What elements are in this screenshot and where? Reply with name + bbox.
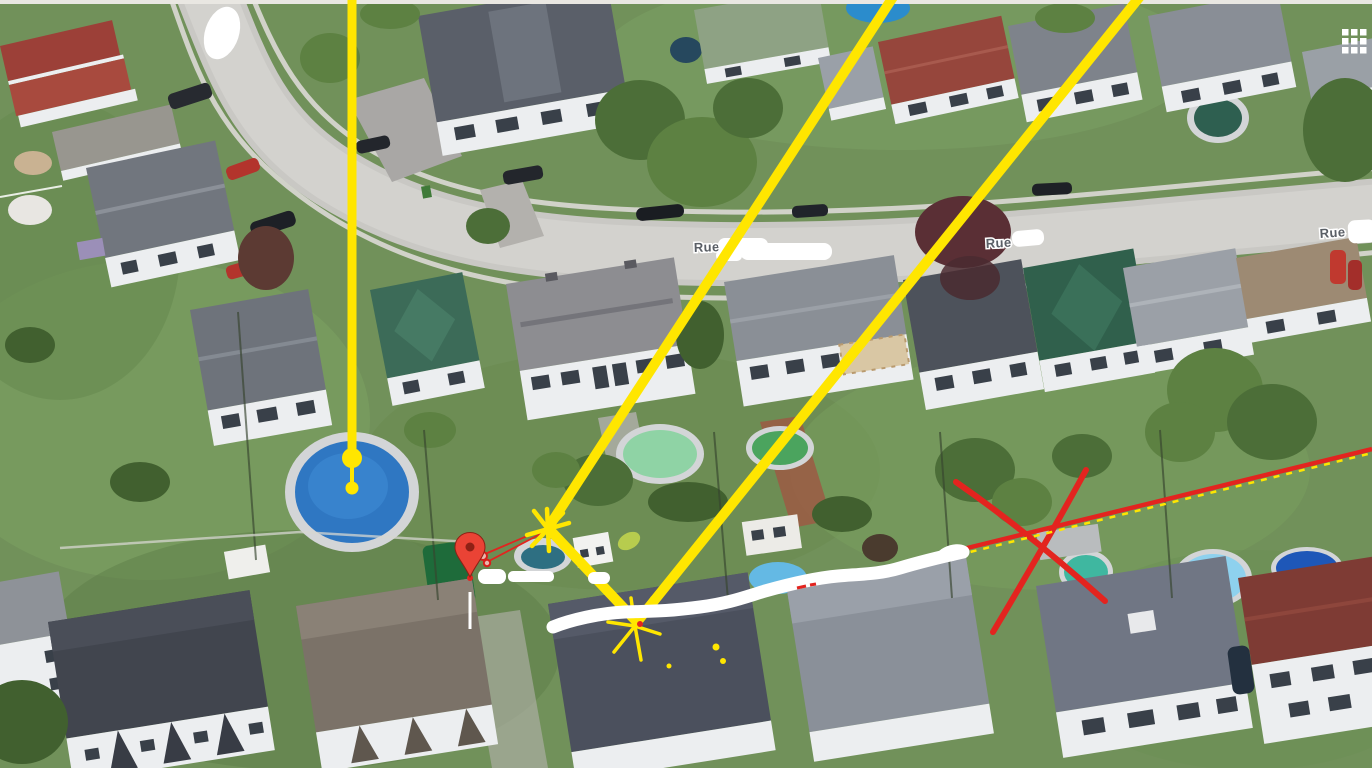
red-dash [810, 584, 816, 585]
house [1036, 556, 1253, 758]
aerial-map[interactable]: Rue Rue Rue [0, 0, 1372, 768]
house [48, 590, 275, 768]
redaction-blob [1347, 219, 1372, 243]
gazebo [862, 534, 898, 562]
red-dash [797, 586, 806, 588]
patio-umbrella [14, 151, 52, 175]
yellow-endpoint-dot [342, 448, 362, 468]
yellow-dot [667, 664, 672, 669]
top-bar [0, 0, 1372, 4]
yellow-dot [713, 644, 720, 651]
house [786, 556, 994, 762]
car [1348, 260, 1362, 290]
yellow-dot [720, 658, 726, 664]
car [1330, 250, 1346, 284]
street-label: Rue [694, 239, 720, 255]
apps-grid-icon[interactable] [1342, 29, 1367, 54]
car [792, 204, 829, 218]
house [296, 578, 498, 768]
redaction-blob [1011, 229, 1044, 248]
patio-umbrella [8, 195, 52, 225]
house [724, 255, 914, 406]
yellow-endpoint-dot [346, 482, 359, 495]
house [190, 289, 332, 446]
street-label: Rue [1319, 224, 1346, 241]
street-label: Rue [985, 235, 1012, 251]
red-center-dot [637, 621, 643, 627]
screenshot-root: Rue Rue Rue [0, 0, 1372, 768]
car [1032, 182, 1073, 196]
